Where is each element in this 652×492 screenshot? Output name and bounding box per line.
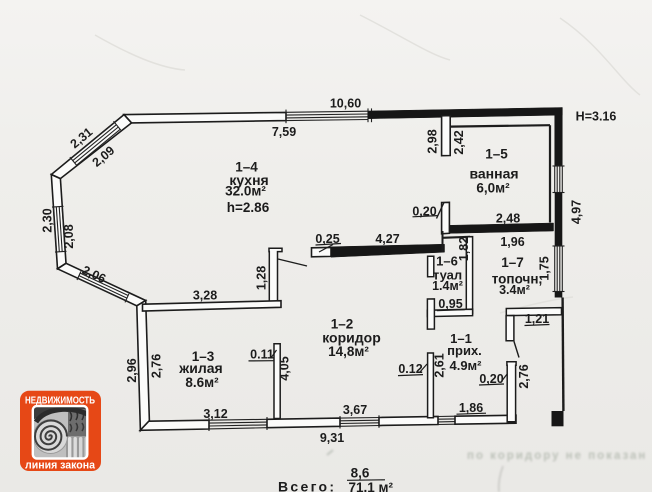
svg-text:4,27: 4,27 bbox=[375, 232, 399, 246]
svg-text:2,30: 2,30 bbox=[41, 208, 55, 232]
svg-text:4,05: 4,05 bbox=[277, 356, 291, 380]
svg-text:3.4м²: 3.4м² bbox=[499, 283, 530, 297]
svg-text:0.11: 0.11 bbox=[250, 348, 274, 362]
svg-text:1–5: 1–5 bbox=[485, 147, 508, 162]
svg-text:3,67: 3,67 bbox=[343, 403, 367, 417]
svg-text:4,97: 4,97 bbox=[570, 200, 584, 224]
svg-text:9,31: 9,31 bbox=[320, 431, 344, 445]
svg-text:2,76: 2,76 bbox=[150, 354, 164, 378]
svg-text:7,59: 7,59 bbox=[272, 125, 296, 139]
svg-text:2,61: 2,61 bbox=[433, 353, 447, 377]
svg-text:1,82: 1,82 bbox=[457, 237, 471, 261]
svg-text:2,96: 2,96 bbox=[125, 358, 139, 382]
svg-text:h=2.86: h=2.86 bbox=[227, 200, 270, 215]
svg-text:71,1 м²: 71,1 м² bbox=[349, 480, 394, 492]
svg-text:1,75: 1,75 bbox=[538, 256, 552, 280]
svg-text:2,08: 2,08 bbox=[62, 224, 76, 248]
svg-text:ванная: ванная bbox=[469, 166, 518, 182]
svg-text:2,42: 2,42 bbox=[452, 130, 466, 154]
svg-text:2,48: 2,48 bbox=[496, 212, 520, 226]
svg-text:32.0м²: 32.0м² bbox=[225, 183, 266, 198]
svg-text:жилая: жилая bbox=[178, 360, 222, 376]
svg-text:1.4м²: 1.4м² bbox=[432, 279, 463, 293]
svg-text:10,60: 10,60 bbox=[330, 97, 361, 111]
svg-text:1,21: 1,21 bbox=[525, 312, 549, 326]
svg-text:по коридору не показан: по коридору не показан bbox=[467, 450, 647, 462]
svg-text:4.9м²: 4.9м² bbox=[449, 358, 482, 373]
svg-text:прих.: прих. bbox=[447, 343, 482, 358]
svg-text:3,28: 3,28 bbox=[193, 289, 217, 303]
svg-text:1–7: 1–7 bbox=[501, 255, 524, 270]
svg-text:2,98: 2,98 bbox=[426, 129, 440, 153]
svg-text:6,0м²: 6,0м² bbox=[476, 181, 510, 196]
svg-text:0,95: 0,95 bbox=[438, 297, 462, 311]
svg-text:линия закона: линия закона bbox=[25, 460, 96, 472]
svg-text:3,12: 3,12 bbox=[203, 407, 227, 421]
svg-text:0.12: 0.12 bbox=[398, 362, 422, 376]
svg-text:1,28: 1,28 bbox=[255, 266, 269, 290]
svg-text:14,8м²: 14,8м² bbox=[328, 344, 369, 359]
svg-text:Всего:: Всего: bbox=[278, 479, 336, 492]
svg-text:1,96: 1,96 bbox=[500, 235, 524, 249]
svg-text:Н=3.16: Н=3.16 bbox=[576, 110, 617, 124]
svg-text:8.6м²: 8.6м² bbox=[185, 375, 219, 390]
svg-text:8,6: 8,6 bbox=[351, 466, 370, 481]
svg-text:2,76: 2,76 bbox=[517, 364, 531, 388]
svg-text:1–6: 1–6 bbox=[436, 254, 458, 269]
